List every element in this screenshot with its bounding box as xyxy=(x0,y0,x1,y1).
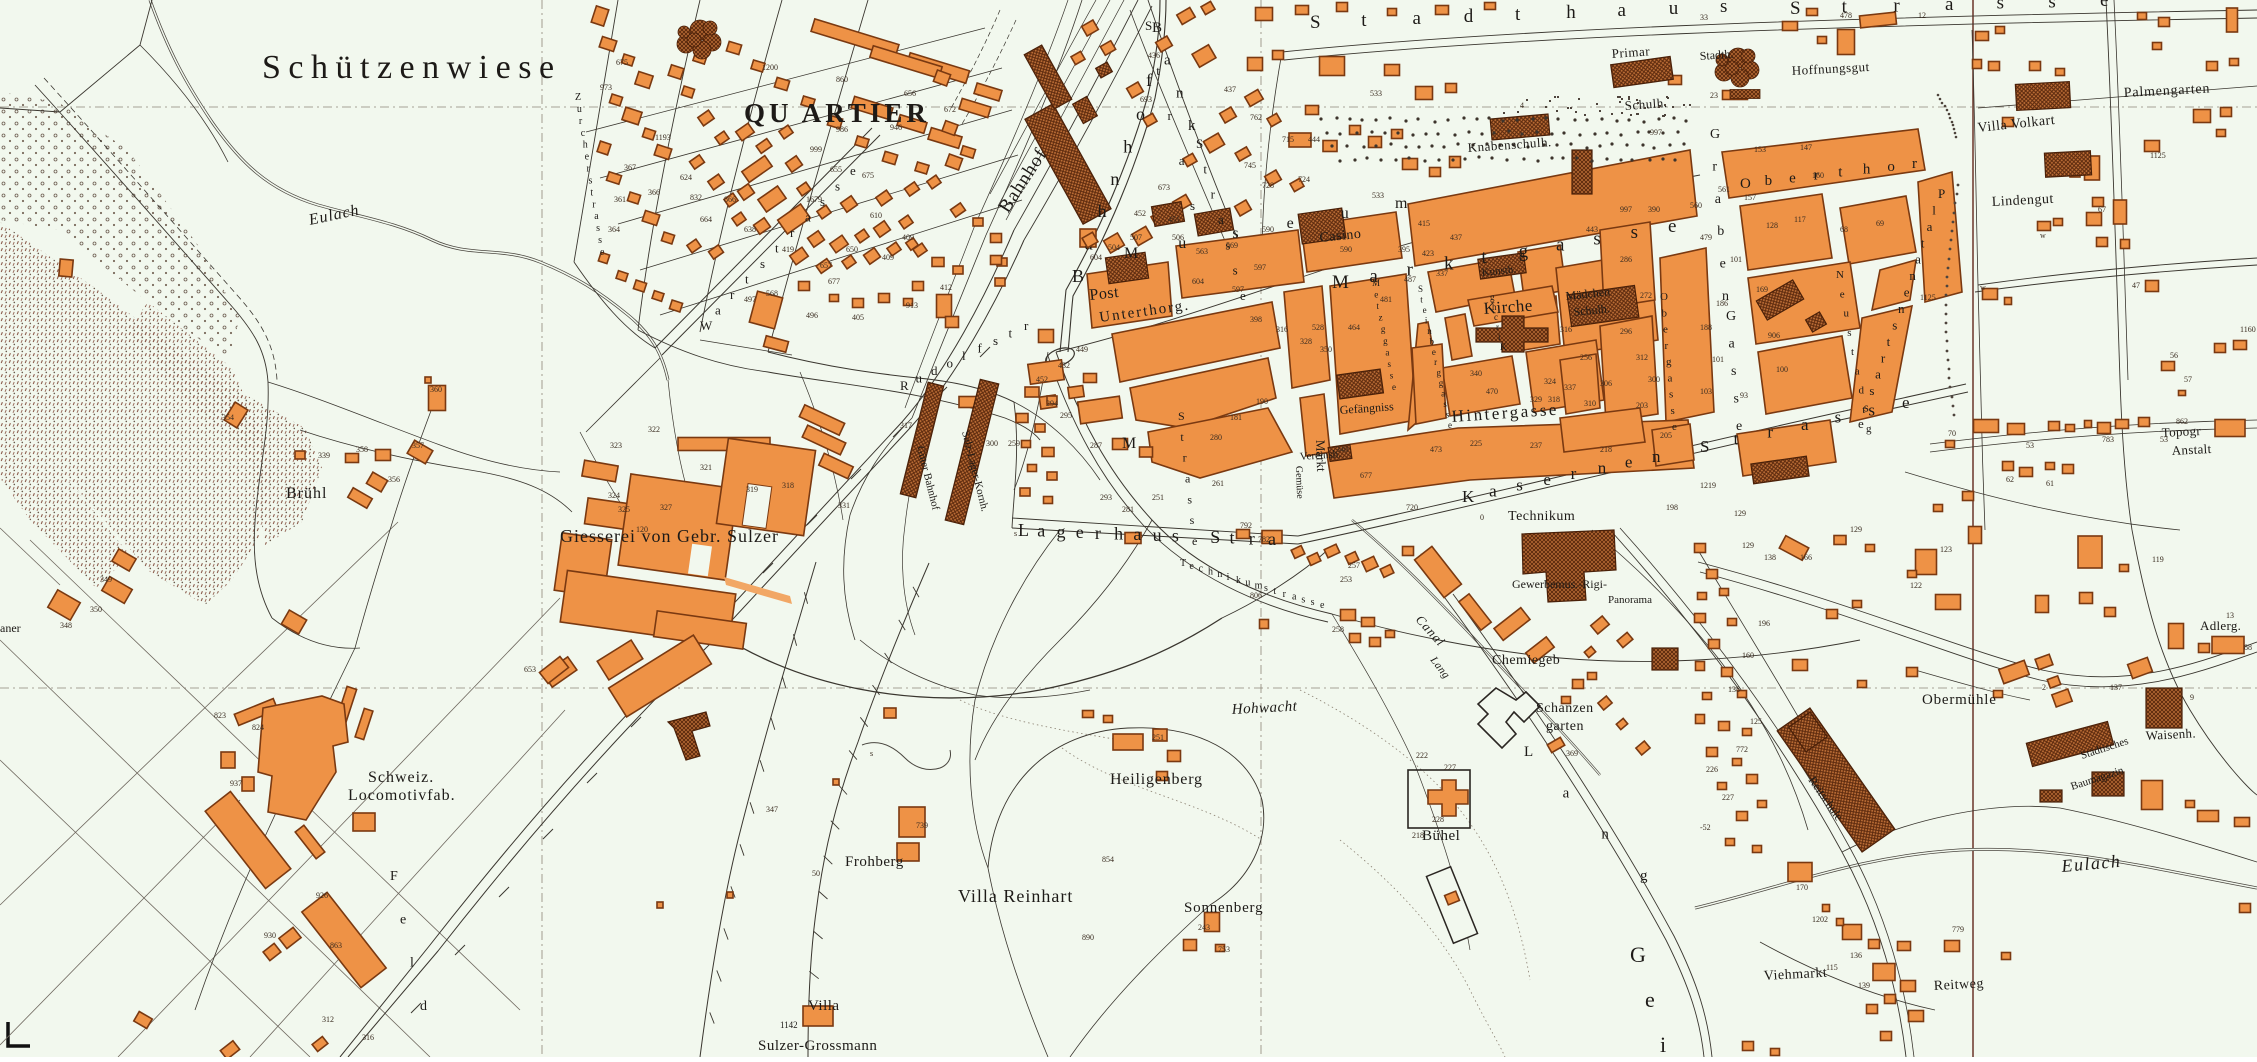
svg-text:329: 329 xyxy=(1530,395,1542,404)
svg-text:h: h xyxy=(1098,201,1107,221)
svg-text:e: e xyxy=(1076,522,1084,542)
svg-text:a: a xyxy=(1037,521,1045,541)
svg-text:s: s xyxy=(1233,263,1238,278)
svg-text:a: a xyxy=(1133,524,1141,544)
svg-text:638: 638 xyxy=(744,225,756,234)
svg-text:g: g xyxy=(1640,868,1648,884)
svg-text:138: 138 xyxy=(1764,553,1776,562)
svg-text:s: s xyxy=(1631,222,1638,243)
svg-text:r: r xyxy=(1183,451,1187,465)
svg-text:321: 321 xyxy=(700,463,712,472)
svg-text:w: w xyxy=(1980,283,1986,292)
svg-text:a: a xyxy=(594,211,599,222)
svg-text:G: G xyxy=(1630,942,1646,967)
svg-text:r: r xyxy=(1893,0,1900,16)
svg-text:444: 444 xyxy=(1308,135,1320,144)
svg-text:b: b xyxy=(1765,173,1773,189)
svg-text:832: 832 xyxy=(690,193,702,202)
svg-text:e: e xyxy=(1423,305,1427,315)
svg-text:331: 331 xyxy=(838,501,850,510)
svg-text:g: g xyxy=(1436,368,1441,378)
svg-text:d: d xyxy=(1859,385,1865,397)
svg-text:a: a xyxy=(1801,415,1809,434)
svg-text:129: 129 xyxy=(1850,525,1862,534)
svg-text:O: O xyxy=(1660,291,1668,303)
svg-text:986: 986 xyxy=(836,125,848,134)
svg-text:296: 296 xyxy=(1620,327,1632,336)
svg-text:s: s xyxy=(1264,583,1268,594)
svg-text:n: n xyxy=(1898,301,1905,316)
svg-text:218: 218 xyxy=(1600,445,1612,454)
svg-text:Brühl: Brühl xyxy=(286,485,327,502)
svg-text:K: K xyxy=(1500,342,1507,352)
svg-text:437: 437 xyxy=(1224,85,1236,94)
svg-text:r: r xyxy=(1168,108,1173,123)
svg-text:B: B xyxy=(1072,266,1084,286)
svg-text:470: 470 xyxy=(1486,387,1498,396)
svg-text:P: P xyxy=(1938,186,1945,201)
svg-text:473: 473 xyxy=(1430,445,1442,454)
svg-text:e: e xyxy=(1543,470,1551,489)
svg-text:560: 560 xyxy=(1690,201,1702,210)
svg-text:a: a xyxy=(1164,53,1171,69)
svg-text:295: 295 xyxy=(1060,411,1072,420)
svg-text:a: a xyxy=(1292,592,1297,603)
svg-text:672: 672 xyxy=(944,105,956,114)
svg-text:t: t xyxy=(1515,4,1521,25)
svg-text:s: s xyxy=(598,235,602,246)
svg-text:53: 53 xyxy=(2026,441,2034,450)
svg-text:r: r xyxy=(730,287,735,302)
svg-text:2: 2 xyxy=(2042,683,2046,692)
svg-text:319: 319 xyxy=(746,485,758,494)
svg-text:675: 675 xyxy=(862,171,874,180)
svg-text:590: 590 xyxy=(1262,225,1274,234)
svg-text:306: 306 xyxy=(1600,379,1612,388)
svg-text:946: 946 xyxy=(890,123,902,132)
svg-text:997: 997 xyxy=(1650,128,1662,137)
svg-text:196: 196 xyxy=(1758,619,1770,628)
svg-text:272: 272 xyxy=(1640,291,1652,300)
svg-text:e: e xyxy=(1789,170,1796,186)
svg-text:n: n xyxy=(1652,447,1661,466)
svg-text:s: s xyxy=(1847,327,1851,339)
svg-text:O: O xyxy=(1740,176,1751,192)
svg-text:395: 395 xyxy=(1398,245,1410,254)
svg-text:o: o xyxy=(947,356,954,371)
svg-text:s: s xyxy=(835,179,840,194)
svg-text:369: 369 xyxy=(1566,749,1578,758)
svg-text:103: 103 xyxy=(1700,387,1712,396)
svg-text:r: r xyxy=(1211,187,1216,202)
svg-text:360: 360 xyxy=(430,385,442,394)
svg-text:r: r xyxy=(790,225,795,240)
svg-text:b: b xyxy=(1430,336,1435,346)
svg-text:s: s xyxy=(1734,392,1739,407)
svg-text:e: e xyxy=(1625,453,1633,472)
svg-text:316: 316 xyxy=(1560,325,1572,334)
svg-text:s: s xyxy=(1390,370,1394,380)
svg-text:153: 153 xyxy=(1754,145,1766,154)
svg-text:432: 432 xyxy=(1058,361,1070,370)
svg-text:724: 724 xyxy=(1298,175,1310,184)
svg-text:e: e xyxy=(1392,382,1396,392)
svg-text:Giesserei von Gebr. Sulzer: Giesserei von Gebr. Sulzer xyxy=(560,526,779,546)
svg-text:R: R xyxy=(900,378,909,393)
svg-text:198: 198 xyxy=(1666,503,1678,512)
svg-text:e: e xyxy=(600,247,605,258)
svg-text:d: d xyxy=(931,363,938,378)
svg-text:l: l xyxy=(1932,202,1936,217)
svg-text:M: M xyxy=(1122,435,1136,452)
svg-text:350: 350 xyxy=(90,605,102,614)
svg-text:S: S xyxy=(1700,437,1709,456)
svg-text:93: 93 xyxy=(1740,391,1748,400)
svg-text:g: g xyxy=(1056,521,1065,541)
svg-text:m: m xyxy=(1255,580,1263,591)
svg-text:r: r xyxy=(1095,523,1101,543)
svg-text:364: 364 xyxy=(608,225,620,234)
svg-text:318: 318 xyxy=(782,481,794,490)
svg-text:568: 568 xyxy=(766,289,778,298)
svg-text:930: 930 xyxy=(264,931,276,940)
svg-text:r: r xyxy=(1881,350,1886,365)
svg-text:o: o xyxy=(1136,104,1145,124)
svg-text:863: 863 xyxy=(330,941,342,950)
svg-text:e: e xyxy=(1645,987,1655,1012)
svg-text:259: 259 xyxy=(1008,439,1020,448)
svg-text:c: c xyxy=(1199,564,1204,575)
svg-text:s: s xyxy=(993,333,998,348)
svg-text:782: 782 xyxy=(1258,535,1270,544)
svg-text:227: 227 xyxy=(1444,763,1456,772)
svg-text:e: e xyxy=(1902,393,1910,412)
svg-text:398: 398 xyxy=(1250,315,1262,324)
svg-text:a: a xyxy=(1715,192,1722,207)
svg-text:s: s xyxy=(1446,410,1450,420)
svg-text:h: h xyxy=(1566,2,1576,23)
svg-text:753: 753 xyxy=(1218,945,1230,954)
svg-text:g: g xyxy=(1866,423,1872,435)
svg-text:Post: Post xyxy=(1089,284,1120,304)
svg-text:b: b xyxy=(1717,224,1724,239)
svg-text:61: 61 xyxy=(2046,479,2054,488)
svg-text:481: 481 xyxy=(1380,295,1392,304)
svg-text:33: 33 xyxy=(1700,13,1708,22)
svg-text:Panorama: Panorama xyxy=(1608,594,1652,606)
svg-text:415: 415 xyxy=(1418,219,1430,228)
svg-text:K: K xyxy=(1462,487,1475,506)
svg-text:999: 999 xyxy=(810,145,822,154)
svg-text:s: s xyxy=(760,256,765,271)
svg-text:s: s xyxy=(1301,594,1305,605)
svg-text:409: 409 xyxy=(882,253,894,262)
svg-text:655: 655 xyxy=(830,165,842,174)
svg-text:s: s xyxy=(1997,0,2004,14)
svg-text:745: 745 xyxy=(1244,161,1256,170)
svg-text:1679: 1679 xyxy=(806,195,822,204)
svg-text:824: 824 xyxy=(252,723,264,732)
svg-text:s: s xyxy=(1868,400,1875,419)
svg-text:68: 68 xyxy=(1840,225,1848,234)
svg-text:f: f xyxy=(1146,70,1152,90)
svg-text:Gewerbemus.-Rigi-: Gewerbemus.-Rigi- xyxy=(1512,577,1607,591)
svg-text:281: 281 xyxy=(1122,505,1134,514)
svg-text:a: a xyxy=(1945,0,1954,15)
svg-text:a: a xyxy=(1441,389,1445,399)
svg-text:t: t xyxy=(1921,235,1925,250)
svg-text:s: s xyxy=(1172,526,1179,546)
svg-text:188: 188 xyxy=(1700,323,1712,332)
svg-text:Markt: Markt xyxy=(1313,440,1329,473)
svg-text:783: 783 xyxy=(2102,435,2114,444)
svg-text:e: e xyxy=(1840,288,1845,300)
svg-text:257: 257 xyxy=(1348,561,1360,570)
svg-text:449: 449 xyxy=(1076,345,1088,354)
svg-text:507: 507 xyxy=(1130,233,1142,242)
svg-text:M: M xyxy=(1124,245,1138,262)
svg-text:Primar: Primar xyxy=(1611,43,1651,61)
svg-text:478: 478 xyxy=(1840,11,1852,20)
svg-text:S: S xyxy=(1418,284,1423,294)
svg-text:Schanzen: Schanzen xyxy=(1536,701,1594,716)
svg-text:937: 937 xyxy=(230,779,242,788)
svg-text:garten: garten xyxy=(1546,719,1584,734)
svg-text:t: t xyxy=(1851,346,1854,358)
svg-text:137: 137 xyxy=(2110,683,2122,692)
svg-text:t: t xyxy=(1156,63,1160,78)
svg-text:t: t xyxy=(1203,161,1207,176)
svg-text:Obermühle: Obermühle xyxy=(1922,692,1997,708)
svg-text:323: 323 xyxy=(610,441,622,450)
svg-text:350: 350 xyxy=(1320,345,1332,354)
svg-text:r: r xyxy=(1665,340,1669,352)
svg-text:s: s xyxy=(1311,597,1315,608)
svg-text:504: 504 xyxy=(1108,243,1120,252)
svg-text:506: 506 xyxy=(1172,233,1184,242)
svg-text:e: e xyxy=(1189,561,1194,572)
svg-text:100: 100 xyxy=(1776,365,1788,374)
svg-text:361: 361 xyxy=(614,195,626,204)
svg-text:t: t xyxy=(590,187,593,198)
svg-text:h: h xyxy=(1114,523,1123,543)
svg-text:d: d xyxy=(420,999,427,1014)
svg-text:Schützenwiese: Schützenwiese xyxy=(262,49,562,86)
svg-text:s: s xyxy=(1869,383,1874,398)
svg-text:e: e xyxy=(1668,216,1676,237)
svg-text:1142: 1142 xyxy=(780,1020,798,1030)
svg-text:S: S xyxy=(1145,18,1152,33)
svg-text:B: B xyxy=(1152,20,1162,36)
svg-text:t: t xyxy=(775,241,779,256)
svg-text:139: 139 xyxy=(1858,981,1870,990)
svg-text:367: 367 xyxy=(624,163,636,172)
svg-text:147: 147 xyxy=(1800,143,1812,152)
svg-text:o: o xyxy=(1887,159,1895,175)
svg-text:117: 117 xyxy=(1794,215,1806,224)
svg-text:9: 9 xyxy=(2190,693,2194,702)
svg-text:Sulzer-Grossmann: Sulzer-Grossmann xyxy=(758,1038,877,1054)
svg-text:203: 203 xyxy=(1636,401,1648,410)
svg-text:160: 160 xyxy=(1742,651,1754,660)
svg-text:327: 327 xyxy=(660,503,672,512)
svg-text:324: 324 xyxy=(1544,377,1556,386)
svg-text:S: S xyxy=(1310,12,1321,33)
svg-text:423: 423 xyxy=(1422,249,1434,258)
svg-text:190: 190 xyxy=(1256,397,1268,406)
svg-text:t: t xyxy=(1009,326,1013,341)
svg-text:n: n xyxy=(1601,827,1609,843)
svg-text:366: 366 xyxy=(648,188,660,197)
svg-text:318: 318 xyxy=(1548,395,1560,404)
svg-text:a: a xyxy=(1927,219,1933,234)
svg-text:a: a xyxy=(1385,347,1389,357)
svg-text:160: 160 xyxy=(1812,171,1824,180)
svg-text:S: S xyxy=(1178,409,1185,423)
svg-text:316: 316 xyxy=(1276,325,1288,334)
svg-text:115: 115 xyxy=(1826,963,1838,972)
svg-text:w: w xyxy=(2040,231,2046,240)
svg-text:563: 563 xyxy=(1196,247,1208,256)
svg-text:23: 23 xyxy=(1710,91,1718,100)
svg-text:294: 294 xyxy=(1046,399,1058,408)
svg-text:Locomotivfab.: Locomotivfab. xyxy=(348,787,456,804)
svg-text:762: 762 xyxy=(1250,113,1262,122)
svg-text:67: 67 xyxy=(2098,205,2106,214)
svg-text:M: M xyxy=(1332,272,1349,293)
svg-text:926: 926 xyxy=(316,891,328,900)
svg-text:a: a xyxy=(1179,153,1185,168)
svg-text:s: s xyxy=(870,749,873,758)
svg-text:256: 256 xyxy=(1580,353,1592,362)
svg-text:123: 123 xyxy=(1940,545,1952,554)
svg-text:227: 227 xyxy=(1722,793,1734,802)
svg-text:677: 677 xyxy=(828,277,840,286)
svg-text:251: 251 xyxy=(1152,733,1164,742)
svg-text:650: 650 xyxy=(846,245,858,254)
svg-text:W: W xyxy=(700,318,713,333)
svg-text:348: 348 xyxy=(60,621,72,630)
svg-text:s: s xyxy=(1892,317,1897,332)
svg-text:101: 101 xyxy=(1730,255,1742,264)
svg-text:261: 261 xyxy=(1212,479,1224,488)
svg-text:u: u xyxy=(1844,308,1850,320)
svg-text:Heiligenberg: Heiligenberg xyxy=(1110,771,1203,788)
svg-text:228: 228 xyxy=(1432,815,1444,824)
svg-text:s: s xyxy=(1232,225,1238,242)
svg-text:316: 316 xyxy=(362,1033,374,1042)
svg-text:122: 122 xyxy=(1910,581,1922,590)
svg-text:Villa: Villa xyxy=(808,998,840,1014)
svg-text:a: a xyxy=(805,210,811,225)
svg-text:G: G xyxy=(1710,127,1720,142)
svg-text:c: c xyxy=(581,128,586,139)
svg-text:157: 157 xyxy=(1744,193,1756,202)
svg-text:Kirche: Kirche xyxy=(1483,296,1533,318)
svg-text:412: 412 xyxy=(940,283,952,292)
svg-text:s: s xyxy=(2048,0,2055,12)
svg-text:Adlerg.: Adlerg. xyxy=(2200,618,2241,633)
svg-text:604: 604 xyxy=(1192,277,1204,286)
svg-text:e: e xyxy=(2100,0,2108,11)
svg-text:673: 673 xyxy=(1158,183,1170,192)
svg-text:287: 287 xyxy=(1090,441,1102,450)
svg-text:r: r xyxy=(1496,322,1499,332)
svg-text:Stadth.: Stadth. xyxy=(1699,47,1734,63)
svg-text:561: 561 xyxy=(1718,185,1730,194)
svg-text:354: 354 xyxy=(222,413,234,422)
svg-text:1125: 1125 xyxy=(1920,293,1936,302)
svg-text:s: s xyxy=(1443,399,1447,409)
svg-text:s: s xyxy=(1388,359,1392,369)
svg-text:452: 452 xyxy=(1036,375,1048,384)
svg-text:Frohberg: Frohberg xyxy=(845,854,904,870)
svg-text:e: e xyxy=(1432,347,1436,357)
svg-text:t: t xyxy=(1361,10,1367,31)
svg-text:437: 437 xyxy=(1450,233,1462,242)
svg-text:53: 53 xyxy=(2160,435,2168,444)
svg-text:340: 340 xyxy=(1470,369,1482,378)
svg-text:u: u xyxy=(916,371,923,386)
svg-text:597: 597 xyxy=(1232,285,1244,294)
svg-text:792: 792 xyxy=(1240,521,1252,530)
svg-text:653: 653 xyxy=(524,665,536,674)
svg-text:973: 973 xyxy=(600,83,612,92)
svg-text:e: e xyxy=(1720,257,1726,272)
svg-text:e: e xyxy=(1672,421,1677,433)
svg-text:e: e xyxy=(400,912,406,927)
svg-text:Waisenh.: Waisenh. xyxy=(2145,725,2196,743)
svg-text:s: s xyxy=(1720,0,1727,17)
svg-text:n: n xyxy=(1598,458,1607,477)
svg-text:251: 251 xyxy=(1152,493,1164,502)
svg-text:S: S xyxy=(1210,527,1220,547)
svg-text:390: 390 xyxy=(1648,205,1660,214)
svg-text:g: g xyxy=(1666,356,1672,368)
svg-text:125: 125 xyxy=(1750,717,1762,726)
svg-text:136: 136 xyxy=(1850,951,1862,960)
svg-text:N: N xyxy=(1836,269,1844,281)
svg-text:u: u xyxy=(577,104,582,115)
svg-text:69: 69 xyxy=(1876,219,1884,228)
svg-text:Gemüse: Gemüse xyxy=(1293,466,1305,500)
svg-text:497: 497 xyxy=(744,295,756,304)
svg-text:357: 357 xyxy=(412,441,424,450)
svg-text:e: e xyxy=(1858,416,1864,431)
svg-text:G: G xyxy=(1726,309,1736,324)
svg-text:a: a xyxy=(1185,472,1191,486)
svg-text:Schweiz.: Schweiz. xyxy=(368,769,434,786)
svg-text:862: 862 xyxy=(2176,417,2188,426)
svg-text:854: 854 xyxy=(1102,855,1114,864)
svg-text:t: t xyxy=(1230,528,1235,548)
svg-text:M: M xyxy=(1372,278,1380,288)
svg-text:57: 57 xyxy=(2184,375,2192,384)
svg-text:464: 464 xyxy=(1348,323,1360,332)
svg-text:310: 310 xyxy=(1584,399,1596,408)
svg-text:d: d xyxy=(1464,6,1474,27)
svg-text:a: a xyxy=(1729,337,1736,352)
svg-text:243: 243 xyxy=(1198,923,1210,932)
svg-text:s: s xyxy=(1190,198,1195,213)
svg-text:101: 101 xyxy=(1712,355,1724,364)
svg-text:h: h xyxy=(583,140,588,151)
svg-text:317: 317 xyxy=(900,421,912,430)
svg-text:337: 337 xyxy=(1436,269,1448,278)
svg-text:226: 226 xyxy=(1706,765,1718,774)
svg-text:u: u xyxy=(1341,205,1349,222)
svg-text:a: a xyxy=(1915,252,1921,267)
